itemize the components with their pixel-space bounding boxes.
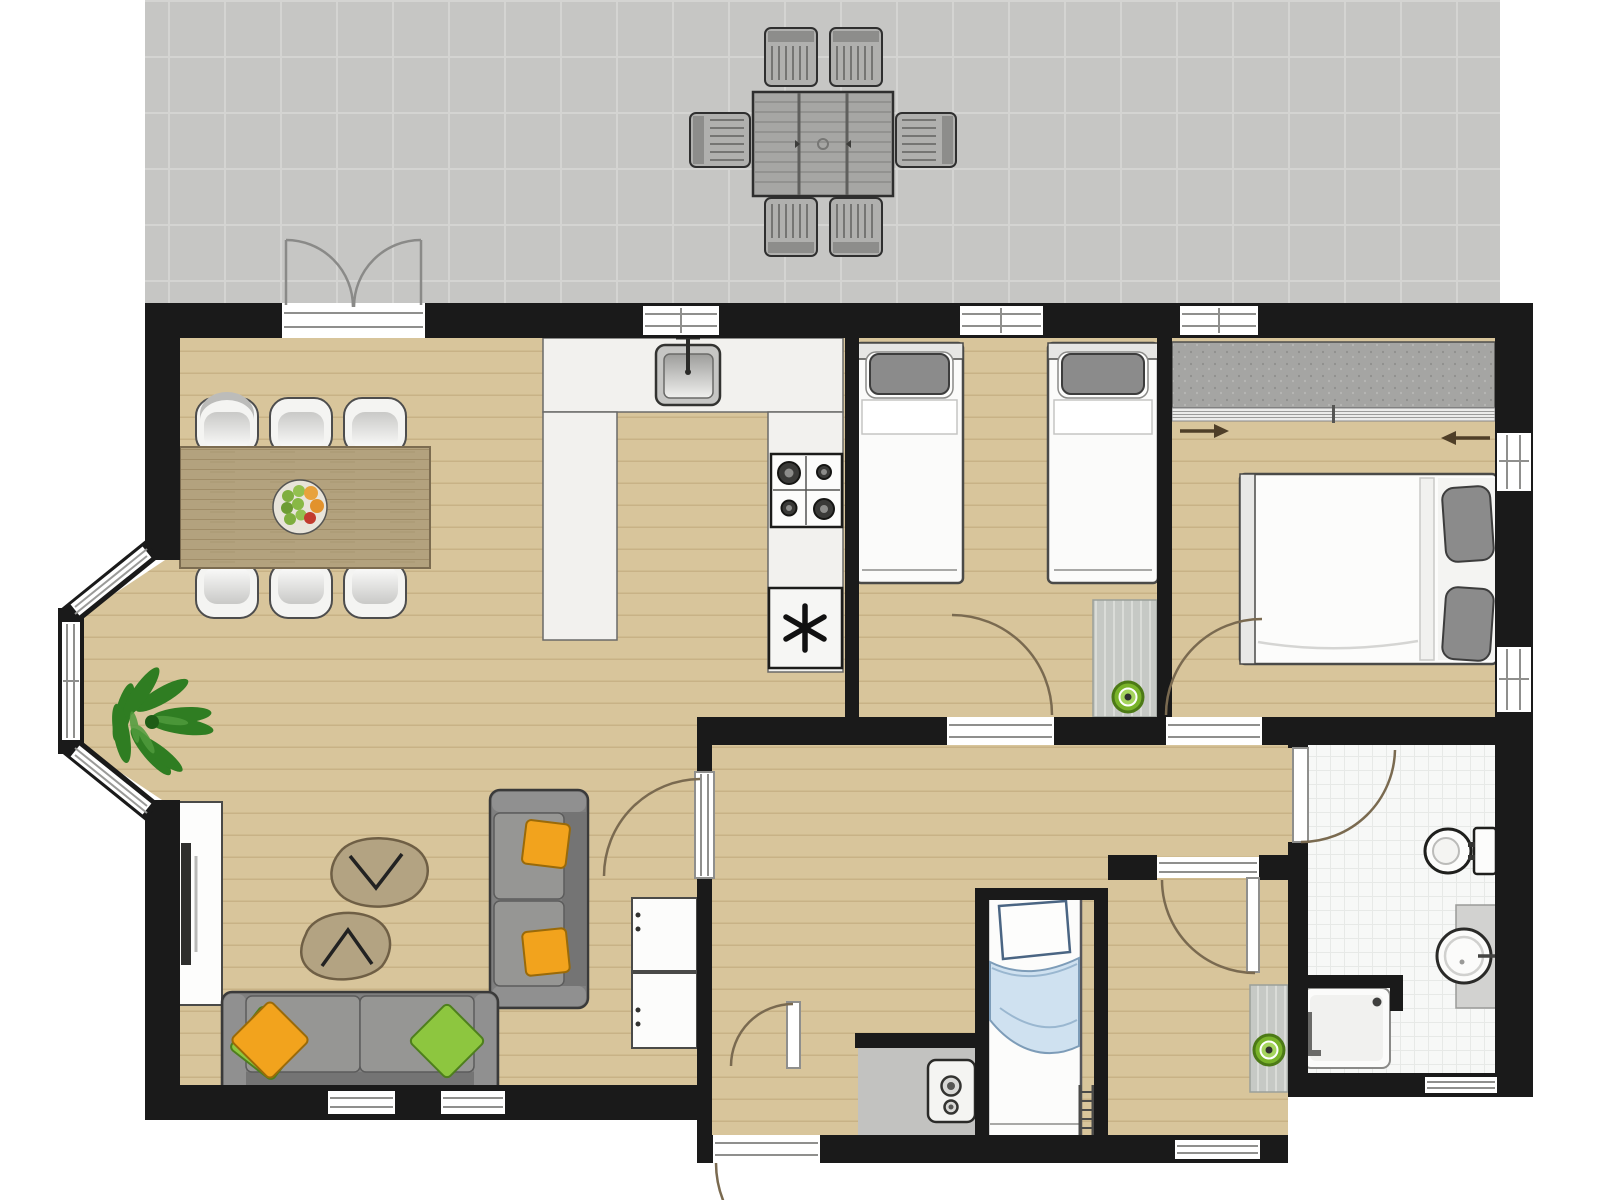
dining-chair xyxy=(270,562,332,618)
washing-machine xyxy=(928,1060,975,1122)
window xyxy=(328,1091,395,1114)
tv-screen xyxy=(181,843,191,965)
wall-niche-top xyxy=(855,1033,975,1048)
orange-pillow xyxy=(522,928,570,976)
dining-chair xyxy=(196,562,258,618)
sofa xyxy=(490,790,588,1008)
dining-chair xyxy=(344,562,406,618)
robot-vacuum xyxy=(1113,682,1143,712)
terrace xyxy=(145,0,1500,303)
wall-hall-long xyxy=(697,717,1500,745)
wall-kitchen-bedroom xyxy=(845,338,859,722)
wall-living-bottom xyxy=(145,1085,710,1120)
window xyxy=(643,306,719,335)
single-bed xyxy=(1048,343,1158,583)
freezer xyxy=(769,588,842,668)
bed-pillow xyxy=(999,901,1070,959)
orange-pillow xyxy=(521,819,570,868)
wall-lower-hall-a xyxy=(1108,855,1157,880)
coffee-table xyxy=(301,913,390,979)
window xyxy=(1497,433,1531,491)
shower xyxy=(1296,975,1403,1068)
dining-chair xyxy=(344,398,406,454)
window xyxy=(1180,306,1258,335)
robot-vacuum xyxy=(1254,1035,1284,1065)
outdoor-table xyxy=(753,92,893,196)
bed-pillow xyxy=(870,354,949,394)
outdoor-chair xyxy=(690,113,750,167)
outdoor-chair xyxy=(830,198,882,256)
wall-left-upper xyxy=(145,303,180,560)
coffee-table xyxy=(331,838,427,906)
tv-unit xyxy=(177,802,222,1005)
wall-bathroom-left-b xyxy=(1288,842,1308,1097)
entrance-door xyxy=(713,1135,820,1200)
window xyxy=(1425,1077,1497,1093)
window xyxy=(1497,647,1531,712)
utility-niche xyxy=(928,1060,975,1122)
ladder xyxy=(1080,1085,1093,1135)
wall-bedroom-master xyxy=(1157,338,1172,722)
toilet xyxy=(1425,828,1496,874)
dining-chair xyxy=(270,398,332,454)
wall-lower-hall-b xyxy=(1259,855,1288,880)
outdoor-chair xyxy=(830,28,882,86)
dining-area xyxy=(180,392,430,618)
bed-pillow xyxy=(1062,354,1144,394)
outdoor-chair xyxy=(896,113,956,167)
wall-left-lower xyxy=(145,800,180,1120)
outdoor-chair xyxy=(765,28,817,86)
outdoor-chair xyxy=(765,198,817,256)
double-bed xyxy=(1240,474,1497,664)
bed-nook xyxy=(988,897,1093,1137)
kitchen-counter-left xyxy=(543,412,617,640)
storage-cabinet xyxy=(632,898,697,971)
floor-plan-page xyxy=(0,0,1600,1200)
wall-bathroom-left-a xyxy=(1288,717,1308,748)
single-bed xyxy=(856,343,963,583)
dining-chair xyxy=(196,392,258,454)
window xyxy=(441,1091,505,1114)
wall-nook-right xyxy=(1094,888,1108,1135)
storage-cabinet xyxy=(632,973,697,1048)
single-bed xyxy=(988,897,1081,1137)
bed-pillow xyxy=(1442,586,1495,661)
shower-drain xyxy=(1373,998,1382,1007)
fruit-bowl xyxy=(273,480,327,534)
wall-entrance-a xyxy=(697,1135,713,1163)
sofa xyxy=(222,992,498,1098)
floor-plan-canvas xyxy=(0,0,1600,1200)
wall-nook-top xyxy=(975,888,1103,900)
stove xyxy=(771,454,842,527)
window xyxy=(1175,1140,1260,1159)
window xyxy=(960,306,1043,335)
wall-nook-left xyxy=(975,888,989,1135)
bed-pillow xyxy=(1441,485,1494,562)
